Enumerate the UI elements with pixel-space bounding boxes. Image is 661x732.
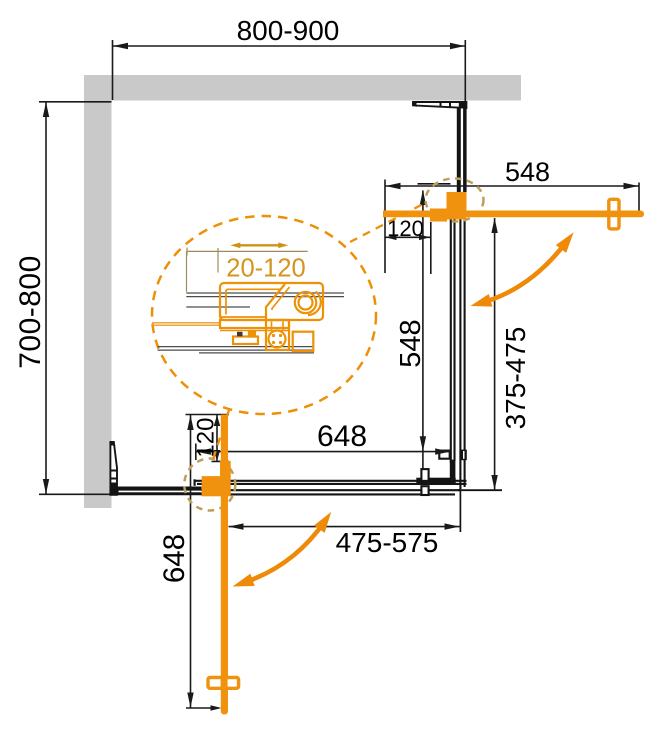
svg-text:548: 548 xyxy=(395,319,427,367)
svg-text:648: 648 xyxy=(158,534,191,583)
svg-text:700-800: 700-800 xyxy=(14,255,47,369)
svg-text:800-900: 800-900 xyxy=(237,15,340,46)
svg-text:648: 648 xyxy=(317,420,367,453)
svg-text:20-120: 20-120 xyxy=(226,255,305,283)
svg-text:548: 548 xyxy=(505,157,550,187)
svg-text:375-475: 375-475 xyxy=(500,327,531,430)
svg-text:475-575: 475-575 xyxy=(336,527,439,558)
